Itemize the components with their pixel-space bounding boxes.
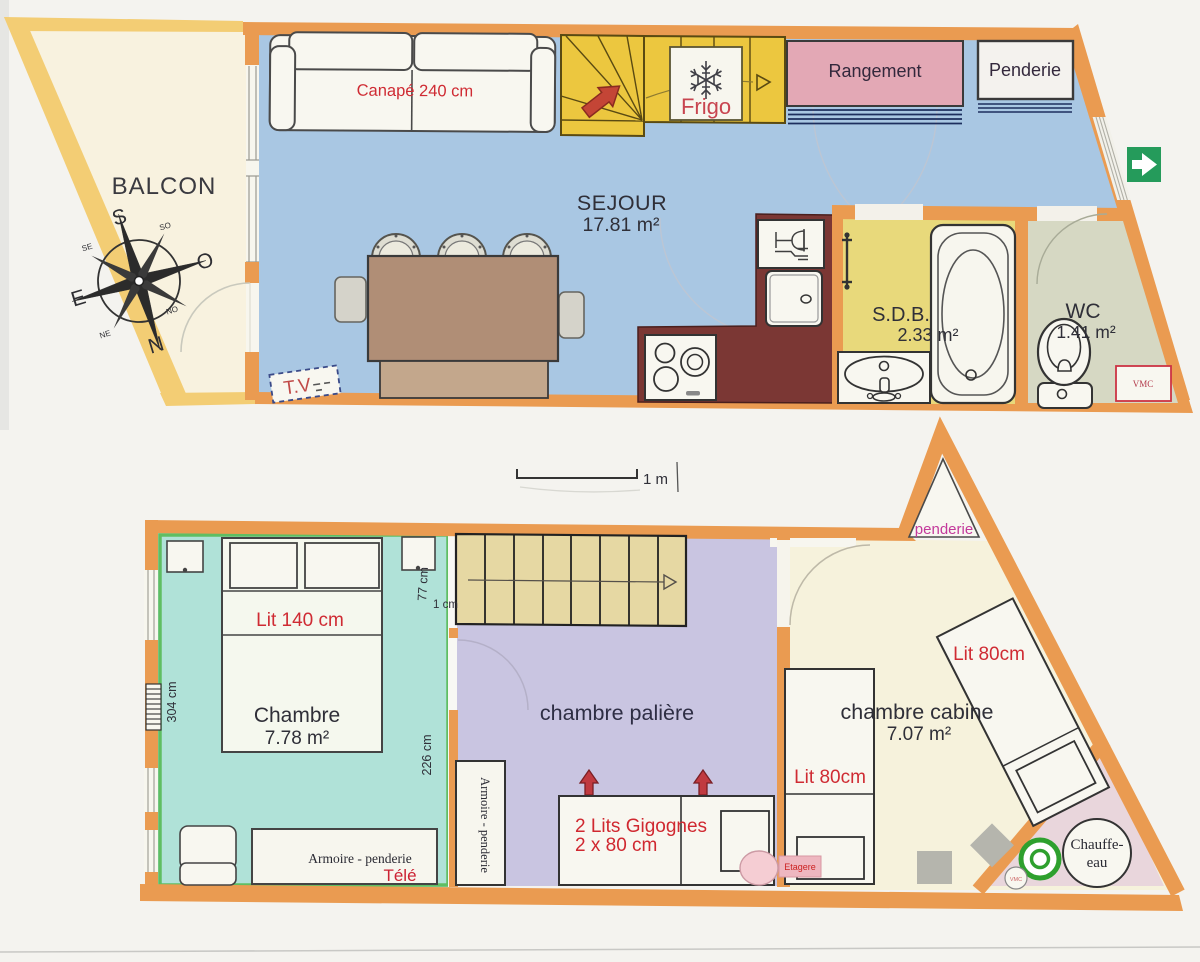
svg-text:VMC: VMC xyxy=(1133,379,1154,389)
svg-text:Chambre: Chambre xyxy=(254,704,340,727)
svg-text:Lit 140 cm: Lit 140 cm xyxy=(256,610,344,631)
svg-text:Etagere: Etagere xyxy=(784,862,816,872)
svg-text:2 Lits Gigognes: 2 Lits Gigognes xyxy=(575,816,707,837)
svg-text:Lit 80cm: Lit 80cm xyxy=(953,644,1025,665)
svg-text:SEJOUR: SEJOUR xyxy=(577,191,667,215)
svg-text:Penderie: Penderie xyxy=(989,60,1061,80)
svg-text:chambre cabine: chambre cabine xyxy=(841,700,994,724)
svg-text:T.V: T.V xyxy=(282,375,312,400)
svg-text:7.78 m²: 7.78 m² xyxy=(265,728,329,749)
svg-text:S.D.B.: S.D.B. xyxy=(872,304,930,326)
svg-text:Armoire - penderie: Armoire - penderie xyxy=(308,851,411,866)
svg-text:2.33 m²: 2.33 m² xyxy=(897,325,958,345)
svg-text:Canapé 240 cm: Canapé 240 cm xyxy=(357,82,474,101)
svg-text:Rangement: Rangement xyxy=(828,61,921,81)
svg-text:VMC: VMC xyxy=(1010,877,1022,883)
svg-text:Lit 80cm: Lit 80cm xyxy=(794,767,866,788)
svg-text:1 cm: 1 cm xyxy=(433,599,458,611)
svg-text:226 cm: 226 cm xyxy=(420,735,434,776)
svg-text:Chauffe-: Chauffe- xyxy=(1070,837,1123,853)
svg-text:2 x 80 cm: 2 x 80 cm xyxy=(575,835,657,856)
svg-text:Armoire - penderie: Armoire - penderie xyxy=(478,777,492,873)
svg-text:chambre palière: chambre palière xyxy=(540,701,694,725)
svg-text:BALCON: BALCON xyxy=(112,173,217,200)
svg-text:WC: WC xyxy=(1066,300,1101,323)
svg-text:eau: eau xyxy=(1087,855,1108,871)
svg-text:Frigo: Frigo xyxy=(681,94,731,119)
svg-text:17.81 m²: 17.81 m² xyxy=(583,214,660,236)
svg-text:Télé: Télé xyxy=(383,866,416,885)
svg-text:1.41 m²: 1.41 m² xyxy=(1056,322,1115,342)
svg-text:304 cm: 304 cm xyxy=(165,682,179,723)
svg-text:7.07 m²: 7.07 m² xyxy=(887,724,951,745)
svg-text:1 m: 1 m xyxy=(643,471,668,488)
svg-text:77 cm: 77 cm xyxy=(415,567,431,602)
svg-text:penderie: penderie xyxy=(915,521,973,538)
